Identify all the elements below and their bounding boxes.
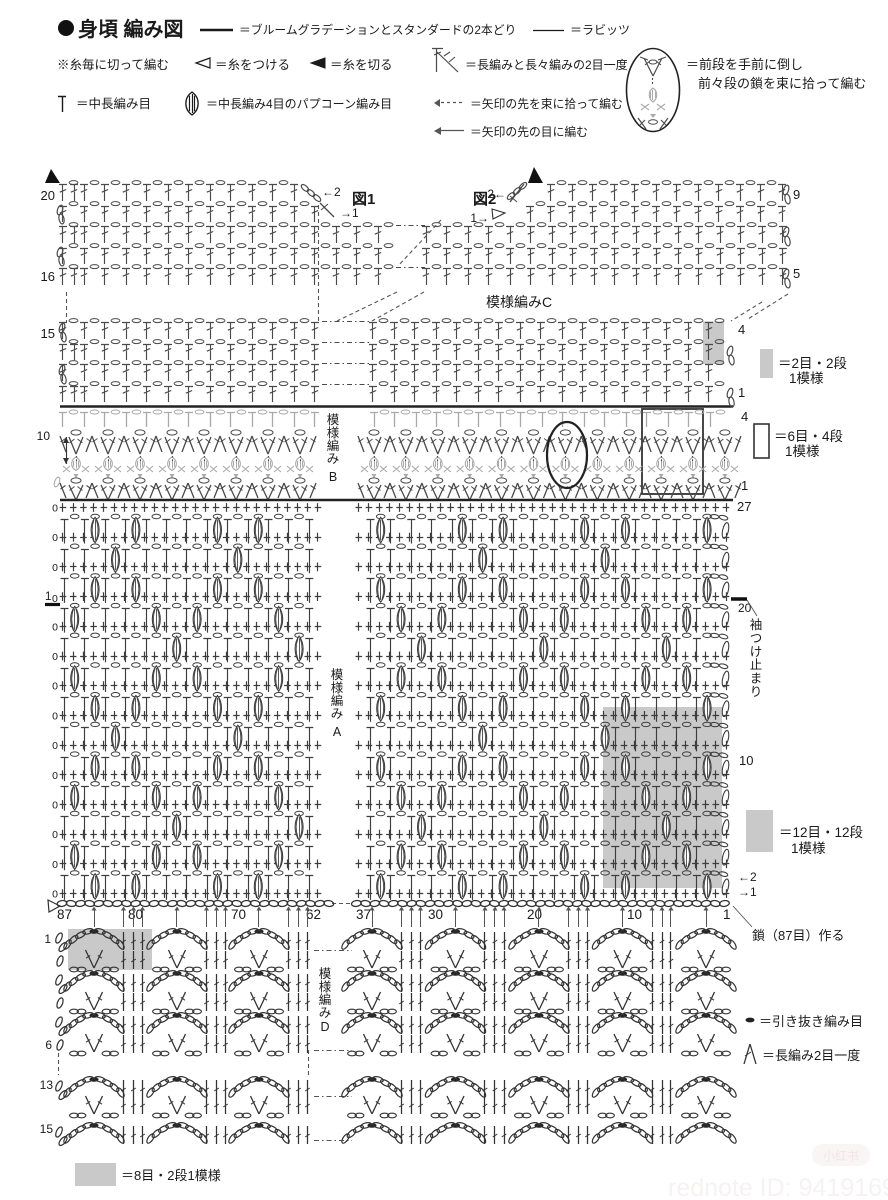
svg-text:＝糸を切る: ＝糸を切る <box>330 58 393 72</box>
svg-text:16: 16 <box>41 269 55 284</box>
svg-text:1: 1 <box>45 591 51 603</box>
svg-text:り: り <box>750 685 763 699</box>
svg-text:鎖（87目）作る: 鎖（87目）作る <box>752 928 844 943</box>
svg-text:→1: →1 <box>738 885 757 899</box>
svg-text:＝2目・2段: ＝2目・2段 <box>778 356 847 371</box>
svg-text:5: 5 <box>793 266 800 281</box>
svg-text:0: 0 <box>52 532 58 544</box>
svg-text:10: 10 <box>37 429 51 443</box>
svg-text:模: 模 <box>331 668 344 682</box>
svg-text:10: 10 <box>627 907 642 922</box>
svg-text:み: み <box>327 452 340 466</box>
svg-text:A: A <box>333 725 342 739</box>
svg-text:15: 15 <box>41 326 55 341</box>
svg-text:0: 0 <box>52 503 58 515</box>
svg-text:＝中長編み4目のパプコーン編み目: ＝中長編み4目のパプコーン編み目 <box>206 96 392 111</box>
svg-text:様: 様 <box>319 979 332 994</box>
svg-text:編: 編 <box>319 992 332 1007</box>
svg-text:＝長編み2目一度: ＝長編み2目一度 <box>762 1048 860 1063</box>
svg-text:6: 6 <box>45 1038 52 1052</box>
svg-text:編: 編 <box>327 438 340 453</box>
svg-text:←2: ←2 <box>322 185 341 199</box>
svg-text:模: 模 <box>319 967 332 981</box>
svg-text:1: 1 <box>741 478 748 493</box>
svg-text:0: 0 <box>52 651 58 663</box>
svg-text:模様編みC: 模様編みC <box>486 294 552 310</box>
svg-text:→1: →1 <box>340 206 359 220</box>
svg-text:前々段の鎖を束に拾って編む: 前々段の鎖を束に拾って編む <box>698 76 866 91</box>
svg-text:0: 0 <box>52 710 58 722</box>
svg-text:0: 0 <box>52 859 58 871</box>
svg-text:＝前段を手前に倒し: ＝前段を手前に倒し <box>686 57 803 72</box>
svg-text:＝矢印の先の目に編む: ＝矢印の先の目に編む <box>470 125 588 139</box>
svg-text:4: 4 <box>741 409 748 424</box>
svg-text:※糸毎に切って編む: ※糸毎に切って編む <box>57 57 169 72</box>
svg-text:＝長編みと長々編みの2目一度: ＝長編みと長々編みの2目一度 <box>465 57 628 72</box>
svg-text:4: 4 <box>738 322 745 337</box>
svg-text:み: み <box>331 707 344 721</box>
svg-text:図2: 図2 <box>473 191 496 208</box>
svg-text:1: 1 <box>723 907 731 922</box>
svg-text:0: 0 <box>52 562 58 574</box>
svg-text:15: 15 <box>40 1122 54 1136</box>
svg-text:＝引き抜き編み目: ＝引き抜き編み目 <box>759 1014 863 1029</box>
svg-text:1: 1 <box>738 385 745 400</box>
svg-text:0: 0 <box>52 800 58 812</box>
svg-text:70: 70 <box>231 907 246 922</box>
svg-text:30: 30 <box>428 907 443 922</box>
svg-text:模: 模 <box>327 413 340 427</box>
svg-text:10: 10 <box>739 753 753 768</box>
svg-text:＝ブルームグラデーションとスタンダードの2本どり: ＝ブルームグラデーションとスタンダードの2本どり <box>239 23 516 37</box>
svg-text:1: 1 <box>44 932 51 946</box>
svg-text:小红书: 小红书 <box>823 1148 859 1163</box>
svg-text:身頃 編み図: 身頃 編み図 <box>78 17 184 41</box>
svg-text:D: D <box>320 1020 329 1034</box>
svg-text:0: 0 <box>52 681 58 693</box>
svg-text:＝矢印の先を束に拾って編む: ＝矢印の先を束に拾って編む <box>470 97 623 111</box>
svg-text:27: 27 <box>737 499 751 514</box>
svg-text:0: 0 <box>52 621 58 633</box>
svg-text:37: 37 <box>356 907 371 922</box>
svg-text:9: 9 <box>793 187 800 202</box>
svg-text:＝6目・4段: ＝6目・4段 <box>774 429 843 444</box>
svg-text:袖: 袖 <box>750 617 763 632</box>
svg-text:様: 様 <box>327 425 340 440</box>
svg-text:＝中長編み目: ＝中長編み目 <box>76 96 151 111</box>
svg-text:1模様: 1模様 <box>791 841 826 856</box>
svg-text:0: 0 <box>52 829 58 841</box>
svg-text:編: 編 <box>331 693 344 708</box>
svg-text:＝ラビッツ: ＝ラビッツ <box>570 23 630 37</box>
svg-text:B: B <box>329 470 337 484</box>
svg-text:0: 0 <box>52 889 58 901</box>
svg-text:1模様: 1模様 <box>789 371 824 386</box>
svg-text:20: 20 <box>41 188 55 203</box>
svg-text:87: 87 <box>57 907 72 922</box>
svg-text:＝12目・12段: ＝12目・12段 <box>779 825 863 840</box>
svg-text:止: 止 <box>750 658 763 672</box>
svg-text:つ: つ <box>750 631 763 645</box>
svg-text:ま: ま <box>750 672 763 686</box>
svg-text:＝8目・2段1模様: ＝8目・2段1模様 <box>121 1168 221 1183</box>
svg-text:様: 様 <box>331 680 344 695</box>
svg-text:←2: ←2 <box>738 870 757 884</box>
svg-text:13: 13 <box>40 1078 54 1092</box>
svg-text:0: 0 <box>52 740 58 752</box>
svg-text:み: み <box>319 1006 332 1020</box>
svg-text:＝糸をつける: ＝糸をつける <box>215 58 290 72</box>
svg-text:け: け <box>750 645 763 659</box>
svg-text:1模様: 1模様 <box>785 444 820 459</box>
svg-text:rednote ID: 941916912: rednote ID: 941916912 <box>668 1174 888 1200</box>
svg-text:0: 0 <box>52 770 58 782</box>
svg-text:20: 20 <box>738 601 752 615</box>
